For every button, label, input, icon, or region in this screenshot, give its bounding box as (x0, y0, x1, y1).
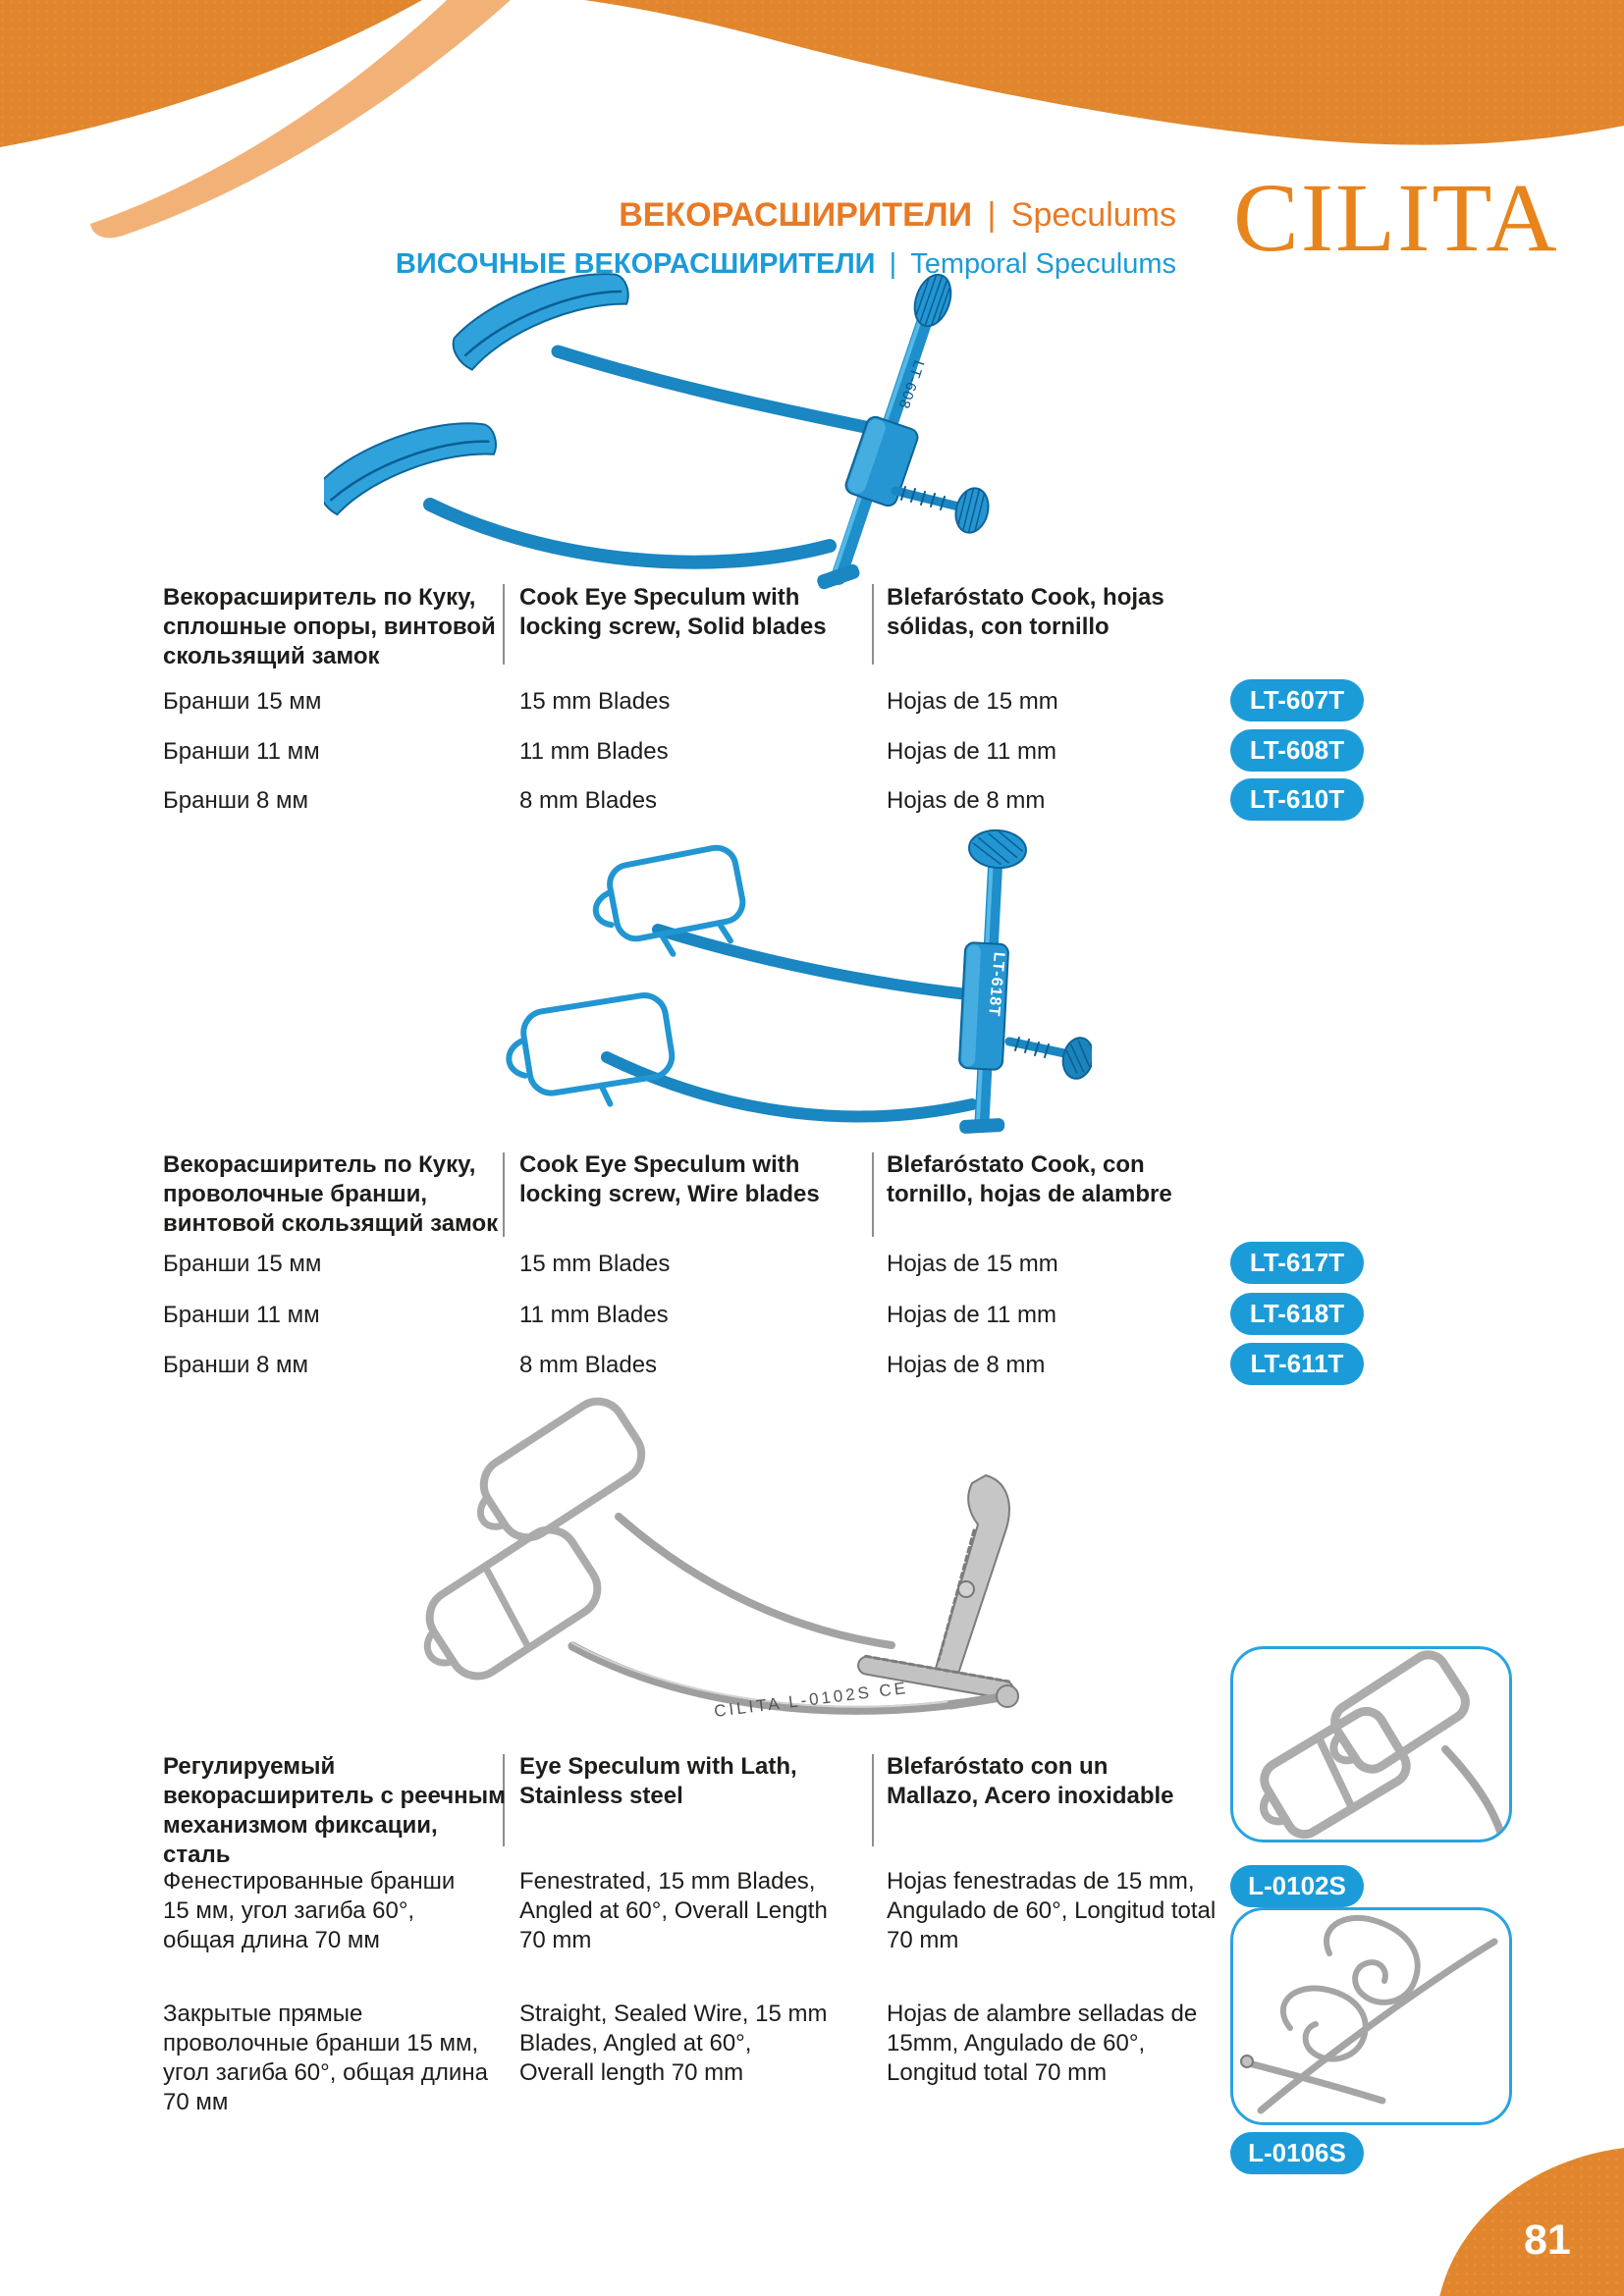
product-photo-steel-speculum: CILITA L-0102S CE (361, 1387, 1063, 1731)
product-code-badge: LT-611T (1230, 1343, 1364, 1385)
product-photo-cook-wire-blades: LT-618T (454, 818, 1092, 1137)
spec-row-es: Hojas de 11 mm (887, 737, 1220, 767)
thumb-screw (1059, 1035, 1092, 1081)
spec-row-es: Hojas de 8 mm (887, 1351, 1220, 1380)
solid-blade-upper (444, 262, 637, 373)
spec-row-ru: Закрытые прямые проволочные бранши 15 мм… (163, 2000, 507, 2117)
brand-logo: CILITA (1233, 167, 1559, 269)
section3-header-ru: Регулируемый векорасширитель с реечным м… (163, 1752, 507, 1870)
solid-blade-lower (324, 412, 504, 518)
section2-header-en: Cook Eye Speculum with locking screw, Wi… (519, 1150, 863, 1209)
spec-row-es: Hojas de 11 mm (887, 1301, 1220, 1330)
section2-header-es: Blefaróstato Cook, con tornillo, hojas d… (887, 1150, 1220, 1209)
product-code-badge: LT-618T (1230, 1293, 1364, 1335)
section1-header-es: Blefaróstato Cook, hojas sólidas, con to… (887, 583, 1220, 642)
spec-row-en: 8 mm Blades (519, 786, 863, 816)
spec-row-es: Hojas de 8 mm (887, 786, 1220, 816)
page-title: ВЕКОРАСШИРИТЕЛИ | Speculums (396, 196, 1176, 234)
spec-row-ru: Бранши 8 мм (163, 1351, 507, 1380)
knurled-knob (908, 270, 957, 331)
spec-row-en: Straight, Sealed Wire, 15 mm Blades, Ang… (519, 2000, 863, 2088)
column-divider (872, 584, 874, 665)
product-code-badge: LT-610T (1230, 778, 1364, 821)
section1-header-en: Cook Eye Speculum with locking screw, So… (519, 583, 863, 642)
spec-row-en: 11 mm Blades (519, 1301, 863, 1330)
detail-photo-box-sealed-wire (1230, 1907, 1512, 2125)
spec-row-es: Hojas fenestradas de 15 mm, Angulado de … (887, 1867, 1220, 1955)
pivot-pin (958, 1581, 974, 1597)
spec-row-en: 15 mm Blades (519, 1250, 863, 1279)
spec-row-es: Hojas de alambre selladas de 15mm, Angul… (887, 2000, 1220, 2088)
product-code-badge: LT-607T (1230, 679, 1364, 721)
product-code-badge: L-0106S (1230, 2132, 1364, 2174)
page-number: 81 (1524, 2216, 1571, 2265)
detail-photo-box-fenestrated (1230, 1646, 1512, 1842)
spec-row-ru: Бранши 15 мм (163, 1250, 507, 1279)
wire-blade-lower (503, 992, 678, 1119)
detail-photo-sealed-wire-blades (1233, 1910, 1509, 2122)
spec-row-ru: Бранши 8 мм (163, 786, 507, 816)
fenestrated-blade-lower (406, 1520, 608, 1695)
spec-row-en: 15 mm Blades (519, 687, 863, 717)
spec-row-en: 11 mm Blades (519, 737, 863, 767)
page-title-ru: ВЕКОРАСШИРИТЕЛИ (619, 196, 972, 234)
catalog-page: ВЕКОРАСШИРИТЕЛИ | Speculums ВИСОЧНЫЕ ВЕК… (0, 0, 1624, 2296)
section3-header-en: Eye Speculum with Lath, Stainless steel (519, 1752, 863, 1811)
product-photo-cook-solid-blades: LT-608 (324, 251, 1031, 590)
spec-row-ru: Бранши 11 мм (163, 1301, 507, 1330)
product-code-badge: LT-608T (1230, 729, 1364, 772)
page-title-en: Speculums (1011, 196, 1176, 234)
spec-row-en: Fenestrated, 15 mm Blades, Angled at 60°… (519, 1867, 863, 1955)
slide-lock-block: LT-618T (959, 942, 1009, 1070)
knurled-knob (968, 828, 1028, 870)
thumb-screw (951, 485, 993, 536)
spec-row-es: Hojas de 15 mm (887, 687, 1220, 717)
lath-rack-blade (935, 1475, 1009, 1680)
spec-row-ru: Бранши 11 мм (163, 737, 507, 767)
section1-header-ru: Векорасширитель по Куку, сплошные опоры,… (163, 583, 507, 671)
section3-header-es: Blefaróstato con un Mallazo, Acero inoxi… (887, 1752, 1220, 1811)
product-code-badge: LT-617T (1230, 1242, 1364, 1284)
spec-row-es: Hojas de 15 mm (887, 1250, 1220, 1279)
title-separator: | (982, 196, 1002, 234)
detail-photo-fenestrated-blades (1233, 1649, 1509, 1840)
spec-row-en: 8 mm Blades (519, 1351, 863, 1380)
column-divider (872, 1152, 874, 1237)
product-code-badge: L-0102S (1230, 1865, 1364, 1907)
section2-header-ru: Векорасширитель по Куку, проволочные бра… (163, 1150, 507, 1239)
spec-row-ru: Бранши 15 мм (163, 687, 507, 717)
column-divider (872, 1754, 874, 1846)
spec-row-ru: Фенестированные бранши 15 мм, угол загиб… (163, 1867, 507, 1955)
